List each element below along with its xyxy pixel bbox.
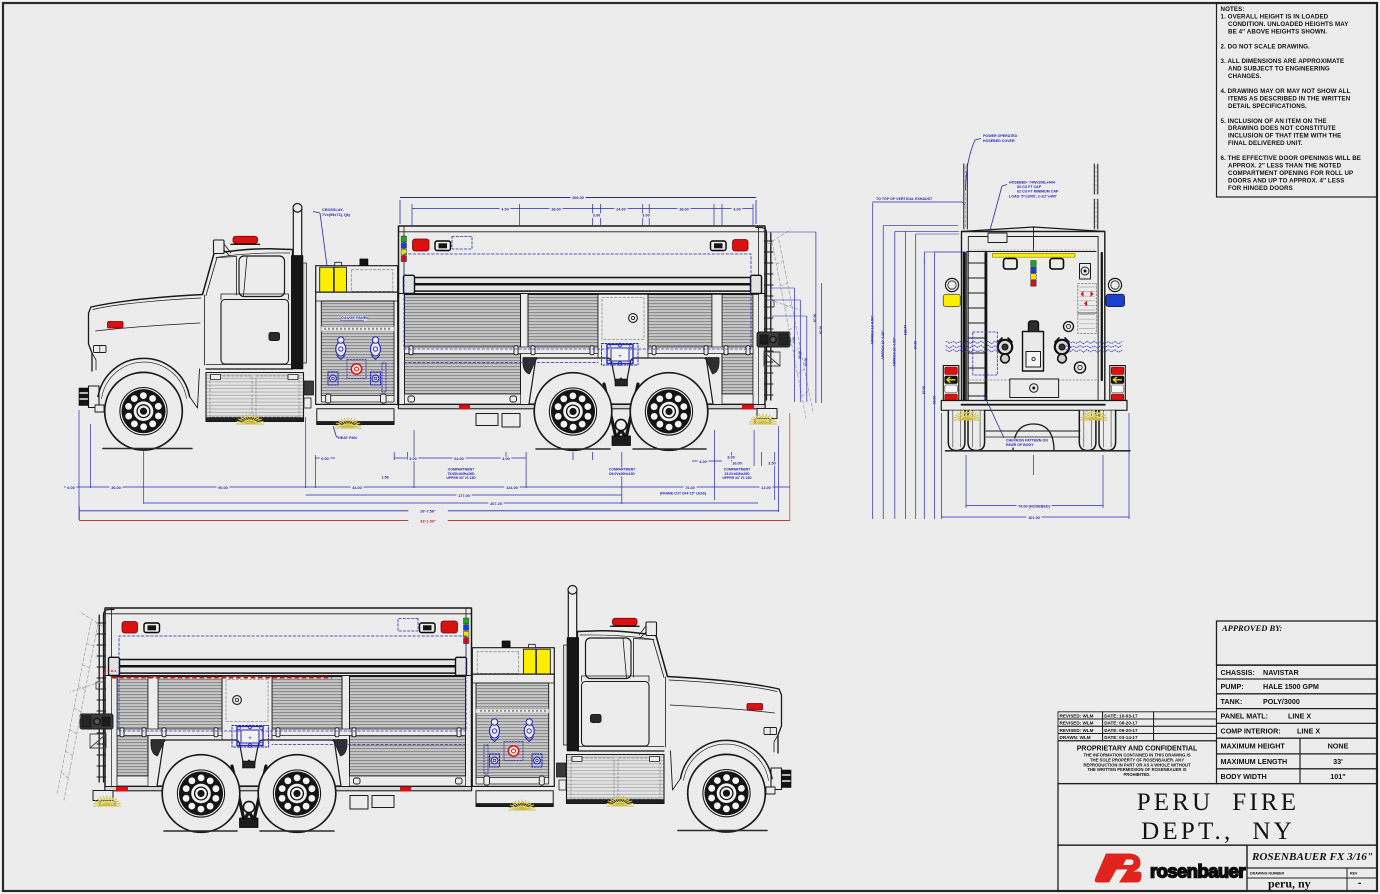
- svg-text:BODY WIDTH: BODY WIDTH: [1221, 772, 1267, 781]
- svg-text:AND SUBJECT TO ENGINEERING: AND SUBJECT TO ENGINEERING: [1228, 66, 1330, 73]
- svg-text:6. THE EFFECTIVE DOOR OPENING: 6. THE EFFECTIVE DOOR OPENINGS WILL BE: [1221, 155, 1362, 162]
- svg-text:1. OVERALL HEIGHT IS IN LOADE: 1. OVERALL HEIGHT IS IN LOADED: [1221, 13, 1329, 20]
- svg-text:DATE: 03-14-17: DATE: 03-14-17: [1104, 735, 1138, 740]
- svg-text:CONDITION. UNLOADED HEIGHTS MA: CONDITION. UNLOADED HEIGHTS MAY: [1228, 21, 1349, 28]
- svg-text:4.00: 4.00: [699, 460, 706, 464]
- svg-text:INCLUSION OF THAT ITEM WITH TH: INCLUSION OF THAT ITEM WITH THE: [1228, 133, 1341, 140]
- svg-text:NAVISTAR: NAVISTAR: [1263, 668, 1299, 677]
- svg-text:peru, ny: peru, ny: [1268, 877, 1311, 891]
- svg-text:DATE: 10-03-17: DATE: 10-03-17: [1104, 713, 1138, 718]
- svg-text:6.00: 6.00: [321, 457, 328, 461]
- svg-text:76.00: 76.00: [685, 486, 695, 490]
- svg-text:POLY/3000: POLY/3000: [1263, 697, 1300, 706]
- svg-text:4.50: 4.50: [792, 337, 796, 344]
- svg-text:2. DO NOT SCALE DRAWING.: 2. DO NOT SCALE DRAWING.: [1221, 43, 1311, 50]
- svg-text:(FRAME CUT OFF 15" LESS): (FRAME CUT OFF 15" LESS): [660, 492, 706, 496]
- svg-text:BE 4″ ABOVE HEIGHTS SHOWN.: BE 4″ ABOVE HEIGHTS SHOWN.: [1228, 28, 1327, 35]
- svg-text:PROHIBITED.: PROHIBITED.: [1124, 772, 1151, 777]
- svg-text:+: +: [618, 354, 622, 360]
- svg-text:DEPT., NY: DEPT., NY: [1141, 818, 1295, 845]
- svg-text:NOTES:: NOTES:: [1221, 6, 1245, 13]
- svg-text:3.00: 3.00: [642, 214, 649, 218]
- svg-text:4.00: 4.00: [501, 207, 508, 211]
- svg-text:206.00: 206.00: [572, 196, 584, 200]
- svg-text:HOSEBED- 74Wx208Lx40H: HOSEBED- 74Wx208Lx40H: [1009, 180, 1056, 184]
- svg-text:CROSSLAY-: CROSSLAY-: [322, 208, 345, 212]
- svg-text:3.00: 3.00: [727, 456, 734, 460]
- svg-text:24.00: 24.00: [616, 207, 626, 211]
- svg-text:DRAWN: WLM: DRAWN: WLM: [1060, 735, 1091, 740]
- svg-text:REV: REV: [1350, 872, 1358, 876]
- svg-text:177.00: 177.00: [458, 494, 470, 498]
- svg-text:APPROVED BY:: APPROVED BY:: [1221, 623, 1283, 633]
- svg-text:DATE: 06-20-17: DATE: 06-20-17: [1104, 721, 1138, 726]
- svg-text:HALE 1500 GPM: HALE 1500 GPM: [1263, 682, 1319, 691]
- svg-text:33'-1.50": 33'-1.50": [420, 519, 436, 523]
- svg-text:COMPARTMENT OPENING FOR ROLL U: COMPARTMENT OPENING FOR ROLL UP: [1228, 170, 1353, 177]
- svg-text:4. DRAWING MAY OR MAY NOT SHO: 4. DRAWING MAY OR MAY NOT SHOW ALL: [1221, 88, 1351, 95]
- svg-text:16.00: 16.00: [732, 462, 742, 466]
- svg-text:74.00 (HOSEBED): 74.00 (HOSEBED): [1018, 504, 1051, 508]
- svg-text:REAR OF BODY: REAR OF BODY: [1006, 443, 1034, 447]
- svg-text:LOAD- 5"x1000', 2-1/2"x400': LOAD- 5"x1000', 2-1/2"x400': [1009, 194, 1057, 198]
- svg-text:CHEVRON PATTERN ON: CHEVRON PATTERN ON: [1006, 439, 1048, 443]
- svg-text:TANK:: TANK:: [1221, 697, 1243, 706]
- svg-text:4.00: 4.00: [502, 457, 509, 461]
- svg-text:GAUGE PANEL: GAUGE PANEL: [341, 316, 369, 320]
- svg-text:101.00: 101.00: [1028, 516, 1040, 520]
- svg-text:NONE: NONE: [1328, 742, 1349, 751]
- svg-text:ROSENBAUER FX 3/16": ROSENBAUER FX 3/16": [1251, 852, 1373, 863]
- svg-text:4.00: 4.00: [733, 207, 740, 211]
- svg-text:12.00: 12.00: [761, 486, 771, 490]
- svg-text:APPROX 11'-6.50": APPROX 11'-6.50": [871, 315, 875, 344]
- svg-text:83 CU FT CAP: 83 CU FT CAP: [1017, 185, 1042, 189]
- svg-text:207.25: 207.25: [490, 502, 502, 506]
- svg-text:DATE: 06-20-17: DATE: 06-20-17: [1104, 728, 1138, 733]
- svg-text:HEAT PAN: HEAT PAN: [338, 436, 357, 440]
- svg-text:124.00: 124.00: [506, 486, 518, 490]
- svg-text:REVISED: WLM: REVISED: WLM: [1060, 721, 1094, 726]
- svg-text:123.74: 123.74: [903, 325, 907, 335]
- svg-text:63.00: 63.00: [933, 396, 937, 405]
- svg-text:APPROX. 2″ LESS THAN THE NOTED: APPROX. 2″ LESS THAN THE NOTED: [1228, 162, 1342, 169]
- svg-text:CHASSIS:: CHASSIS:: [1221, 668, 1255, 677]
- svg-text:HOSEBED COVER: HOSEBED COVER: [983, 139, 1015, 143]
- svg-text:DRAWING NUMBER: DRAWING NUMBER: [1250, 872, 1285, 876]
- svg-text:6.00: 6.00: [67, 486, 74, 490]
- svg-text:1.56: 1.56: [381, 476, 388, 480]
- svg-text:63.00: 63.00: [804, 358, 808, 366]
- svg-text:38.00: 38.00: [679, 207, 689, 211]
- svg-text:FINAL DELIVERED UNIT.: FINAL DELIVERED UNIT.: [1228, 140, 1303, 147]
- svg-text:UPPER 33" IS 13D: UPPER 33" IS 13D: [722, 476, 752, 480]
- svg-text:3.50: 3.50: [768, 462, 775, 466]
- svg-text:5. INCLUSION OF AN ITEM ON TH: 5. INCLUSION OF AN ITEM ON THE: [1221, 118, 1327, 125]
- svg-text:REVISED: WLM: REVISED: WLM: [1060, 713, 1094, 718]
- svg-text:90.00: 90.00: [218, 486, 228, 490]
- svg-text:PROPRIETARY AND CONFIDENTIAL: PROPRIETARY AND CONFIDENTIAL: [1077, 746, 1198, 753]
- svg-text:64.00: 64.00: [454, 457, 464, 461]
- svg-text:26.00: 26.00: [798, 351, 802, 359]
- svg-text:PANEL MATL:: PANEL MATL:: [1221, 712, 1269, 721]
- svg-text:ITEMS AS DESCRIBED IN THE WRIT: ITEMS AS DESCRIBED IN THE WRITTEN: [1228, 95, 1351, 102]
- svg-text:34.00: 34.00: [914, 341, 918, 350]
- svg-text:PUMP:: PUMP:: [1221, 682, 1244, 691]
- svg-text:62 CU FT MINIMUM CAP: 62 CU FT MINIMUM CAP: [1017, 190, 1059, 194]
- svg-text:44.00: 44.00: [352, 486, 362, 490]
- svg-text:D6.0Vx30Hx13D: D6.0Vx30Hx13D: [609, 472, 635, 476]
- svg-text:97.00: 97.00: [819, 326, 823, 334]
- svg-text:POWER OPERATED: POWER OPERATED: [983, 134, 1018, 138]
- svg-text:PERU FIRE: PERU FIRE: [1137, 789, 1300, 816]
- svg-text:REVISED: WLM: REVISED: WLM: [1060, 728, 1094, 733]
- svg-text:67.00: 67.00: [922, 386, 926, 395]
- svg-text:FOR HINGED DOORS: FOR HINGED DOORS: [1228, 185, 1293, 192]
- svg-text:36.00: 36.00: [111, 486, 121, 490]
- svg-text:COMP INTERIOR:: COMP INTERIOR:: [1221, 726, 1281, 735]
- svg-text:CHANGES.: CHANGES.: [1228, 73, 1262, 80]
- svg-text:APPROX 10'-4.25": APPROX 10'-4.25": [881, 330, 885, 360]
- svg-text:3.00: 3.00: [409, 457, 416, 461]
- svg-text:3.00: 3.00: [593, 214, 600, 218]
- svg-text:33': 33': [1333, 757, 1343, 766]
- svg-text:DETAIL SPECIFICATIONS.: DETAIL SPECIFICATIONS.: [1228, 103, 1307, 110]
- svg-text:rosenbauer: rosenbauer: [1150, 862, 1245, 882]
- svg-text:APPROX 10'-4.50": APPROX 10'-4.50": [893, 337, 897, 367]
- svg-text:LINE X: LINE X: [1288, 712, 1311, 721]
- svg-text:7Vx(59x73), Qty: 7Vx(59x73), Qty: [322, 213, 351, 217]
- svg-text:DOORS AND UP TO APPROX. 4″ LES: DOORS AND UP TO APPROX. 4″ LESS: [1228, 177, 1344, 184]
- svg-text:MAXIMUM LENGTH: MAXIMUM LENGTH: [1221, 757, 1288, 766]
- svg-text:LINE X: LINE X: [1297, 726, 1320, 735]
- svg-text:26'-7.56": 26'-7.56": [420, 510, 436, 514]
- svg-text:DRAWING DOES NOT CONSTITUTE: DRAWING DOES NOT CONSTITUTE: [1228, 125, 1336, 132]
- svg-text:-: -: [1358, 878, 1361, 889]
- svg-text:87.00: 87.00: [813, 314, 817, 322]
- svg-text:UPPER 33" IS 13D: UPPER 33" IS 13D: [446, 476, 476, 480]
- svg-text:TO TOP OF VERTICAL EXHAUST: TO TOP OF VERTICAL EXHAUST: [876, 197, 933, 201]
- svg-text:3. ALL DIMENSIONS ARE APPROXI: 3. ALL DIMENSIONS ARE APPROXIMATE: [1221, 58, 1345, 65]
- svg-text:38.00: 38.00: [551, 207, 561, 211]
- svg-text:101": 101": [1330, 772, 1345, 781]
- svg-text:MAXIMUM HEIGHT: MAXIMUM HEIGHT: [1221, 742, 1286, 751]
